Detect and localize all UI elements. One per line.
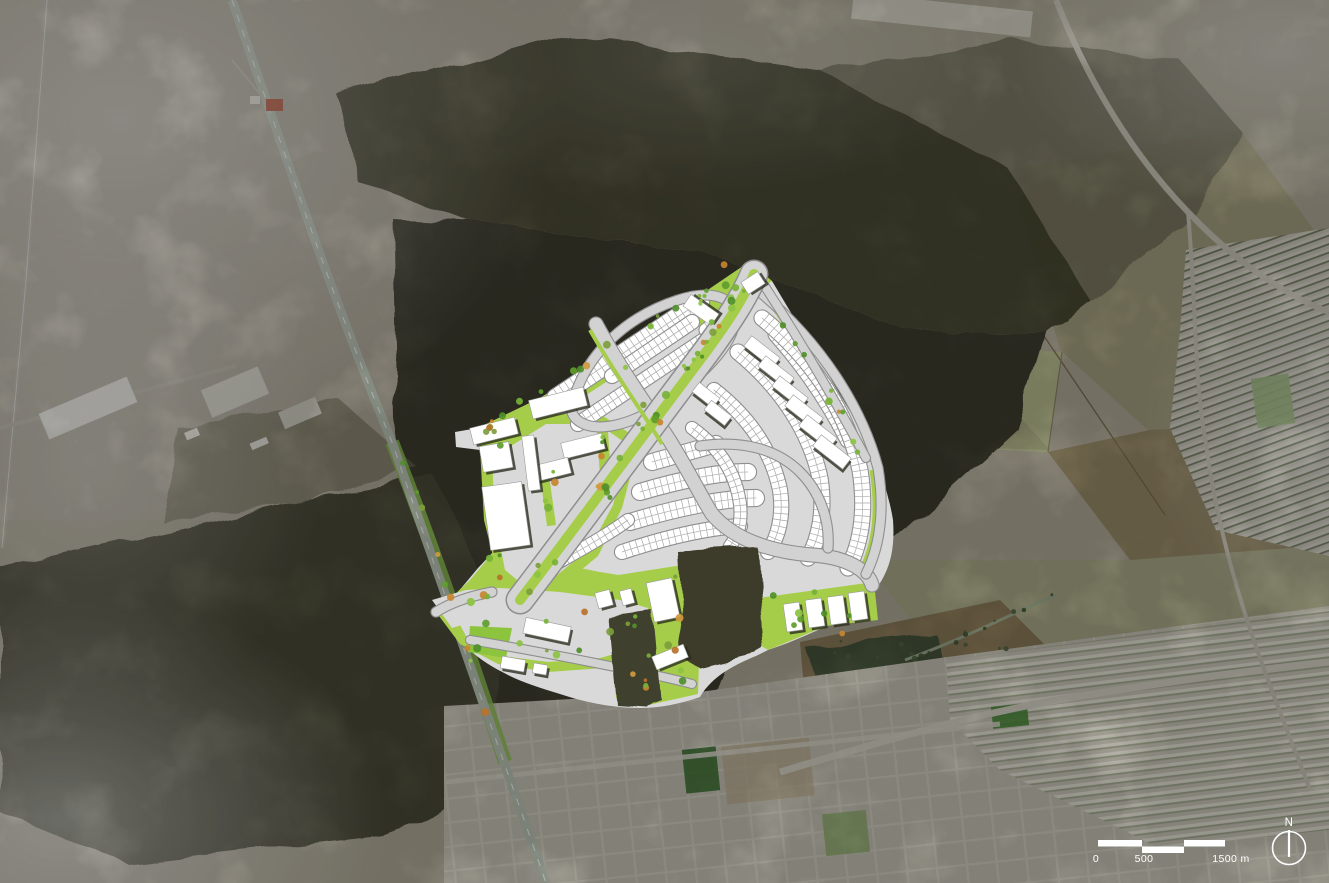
scale-label-mid: 500 — [1135, 853, 1154, 865]
scale-bar-segment-1 — [1098, 840, 1142, 847]
map-canvas: 0 500 1500 m N — [0, 0, 1329, 883]
aerial-masterplan-map: 0 500 1500 m N — [0, 0, 1329, 883]
scale-bar-segment-3 — [1184, 840, 1225, 847]
scale-label-start: 0 — [1093, 853, 1099, 865]
north-arrow-label: N — [1285, 817, 1294, 829]
scale-label-end: 1500 m — [1212, 853, 1249, 865]
